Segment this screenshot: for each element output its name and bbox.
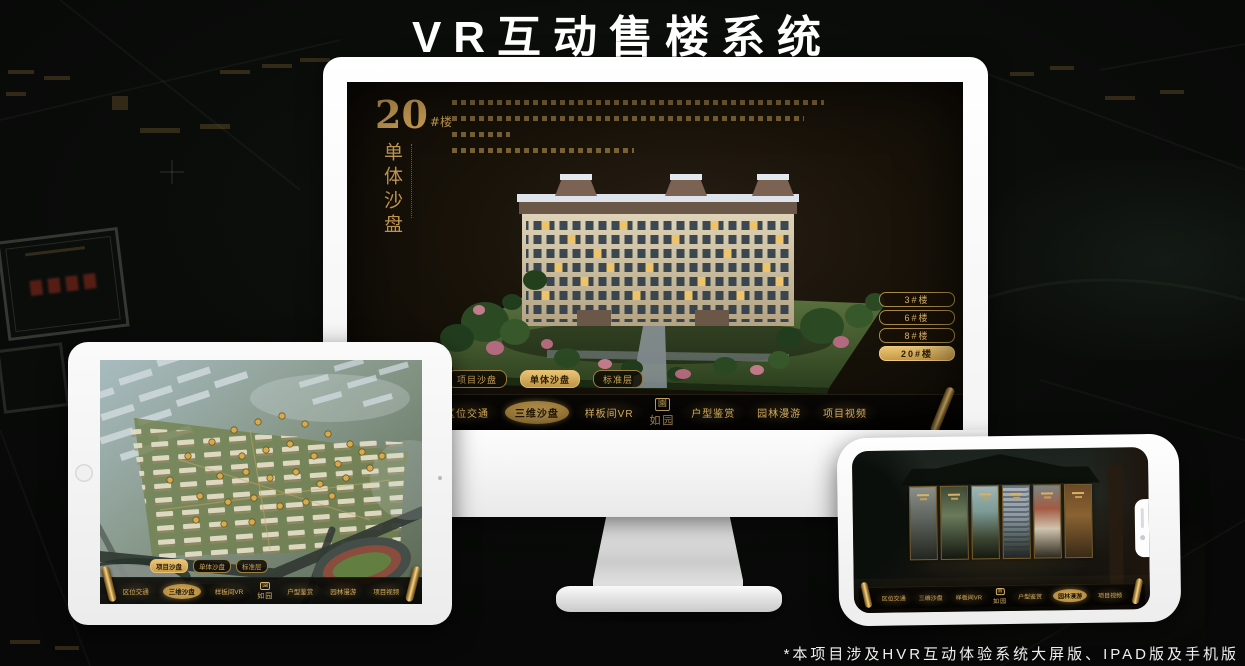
tab-project-sandbox[interactable]: 项目沙盘 (447, 370, 507, 388)
nav-item-3d-sandbox[interactable]: 三维沙盘 (505, 401, 569, 424)
phone-device: 区位交通 三维沙盘 样板间VR 園 如园 户型鉴赏 园林漫游 项目视频 (837, 434, 1182, 627)
ruyuan-logo-text: 如园 (993, 596, 1007, 605)
tablet-home-button[interactable] (75, 464, 93, 482)
nav-item-project-video[interactable]: 项目视频 (817, 402, 873, 423)
tab-single-sandbox[interactable]: 单体沙盘 (193, 559, 231, 573)
ruyuan-logo-text: 如园 (649, 412, 675, 428)
door-frame (1108, 465, 1124, 589)
scene-gallery (909, 484, 1093, 561)
phone-screen: 区位交通 三维沙盘 样板间VR 園 如园 户型鉴赏 园林漫游 项目视频 (852, 447, 1150, 613)
poster-canvas: VR互动售楼系统 *本项目涉及HVR互动体验系统大屏版、IPAD版及手机版 20… (0, 0, 1245, 666)
nav-item-unit-plans[interactable]: 户型鉴赏 (685, 402, 741, 423)
floor-selector: 3#楼 6#楼 8#楼 20#楼 (879, 292, 955, 361)
floor-button-3[interactable]: 3#楼 (879, 292, 955, 307)
award-plaque-secondary (0, 342, 70, 414)
phone-notch (1135, 499, 1151, 557)
nav-item-garden-roam[interactable]: 园林漫游 (1053, 589, 1087, 602)
ruyuan-seal-icon: 園 (655, 398, 670, 411)
nav-item-garden-roam[interactable]: 园林漫游 (327, 584, 359, 598)
tablet-device: 项目沙盘 单体沙盘 标准层 区位交通 三维沙盘 样板间VR 園 如园 户型鉴赏 … (68, 342, 452, 625)
nav-item-location[interactable]: 区位交通 (120, 584, 152, 598)
section-title-vertical: 单体沙盘 (379, 142, 406, 238)
ruyuan-seal-icon: 園 (995, 588, 1004, 595)
nav-item-showroom-vr[interactable]: 样板间VR (212, 584, 247, 598)
scroll-roller-icon[interactable] (929, 386, 955, 430)
tab-standard-floor[interactable]: 标准层 (236, 559, 268, 573)
gallery-panel[interactable] (971, 485, 1000, 559)
description-line (452, 100, 824, 105)
award-plaque (0, 227, 130, 341)
description-line (452, 116, 804, 121)
ruyuan-seal-icon: 園 (260, 582, 270, 590)
nav-item-unit-plans[interactable]: 户型鉴赏 (1016, 590, 1044, 602)
phone-speaker-icon (1141, 508, 1144, 528)
section-title-english (411, 144, 412, 218)
phone-nav-bar: 区位交通 三维沙盘 样板间VR 園 如园 户型鉴赏 园林漫游 项目视频 (859, 583, 1145, 609)
faint-scenery-photo (985, 160, 1245, 360)
floor-button-8[interactable]: 8#楼 (879, 328, 955, 343)
tablet-nav-bar: 区位交通 三维沙盘 样板间VR 園 如园 户型鉴赏 园林漫游 项目视频 (100, 577, 422, 604)
nav-item-garden-roam[interactable]: 园林漫游 (751, 402, 807, 423)
tablet-sandbox-tabs: 项目沙盘 单体沙盘 标准层 (150, 559, 268, 573)
nav-item-showroom-vr[interactable]: 样板间VR (954, 591, 985, 603)
building-unit: #楼 (430, 113, 452, 134)
tab-standard-floor[interactable]: 标准层 (593, 370, 643, 388)
ruyuan-logo[interactable]: 園 如园 (257, 582, 273, 601)
monitor-sandbox-tabs: 项目沙盘 单体沙盘 标准层 (447, 370, 643, 388)
gallery-panel[interactable] (1002, 485, 1031, 559)
gallery-panel[interactable] (1064, 484, 1093, 558)
ruyuan-logo-text: 如园 (257, 591, 273, 601)
nav-item-showroom-vr[interactable]: 样板间VR (579, 402, 640, 423)
nav-item-3d-sandbox[interactable]: 三维沙盘 (917, 591, 945, 603)
tablet-screen: 项目沙盘 单体沙盘 标准层 区位交通 三维沙盘 样板间VR 園 如园 户型鉴赏 … (100, 360, 422, 604)
gallery-panel[interactable] (940, 486, 969, 560)
floor-button-6[interactable]: 6#楼 (879, 310, 955, 325)
gallery-panel[interactable] (909, 486, 938, 560)
nav-item-project-video[interactable]: 项目视频 (1096, 589, 1124, 601)
monitor-stand-neck (593, 515, 743, 591)
floor-button-20[interactable]: 20#楼 (879, 346, 955, 361)
tab-project-sandbox[interactable]: 项目沙盘 (150, 559, 188, 573)
building-3d-render (427, 134, 897, 394)
tab-single-sandbox[interactable]: 单体沙盘 (520, 370, 580, 388)
building-number: 20 (375, 96, 428, 134)
plaque-calligraphy (5, 236, 120, 332)
monitor-stand-base (556, 586, 782, 612)
nav-item-location[interactable]: 区位交通 (880, 592, 908, 604)
gallery-panel[interactable] (1033, 484, 1062, 558)
tablet-camera-icon (438, 476, 442, 480)
nav-item-unit-plans[interactable]: 户型鉴赏 (284, 584, 316, 598)
phone-camera-icon (1140, 535, 1145, 540)
footnote: *本项目涉及HVR互动体验系统大屏版、IPAD版及手机版 (784, 643, 1239, 664)
page-title: VR互动售楼系统 (0, 1, 1245, 65)
nav-item-project-video[interactable]: 项目视频 (370, 584, 402, 598)
ruyuan-logo[interactable]: 園 如园 (993, 588, 1007, 605)
nav-item-3d-sandbox[interactable]: 三维沙盘 (163, 584, 201, 599)
monitor-floor-shadow (540, 612, 800, 626)
ruyuan-logo[interactable]: 園 如园 (649, 398, 675, 428)
